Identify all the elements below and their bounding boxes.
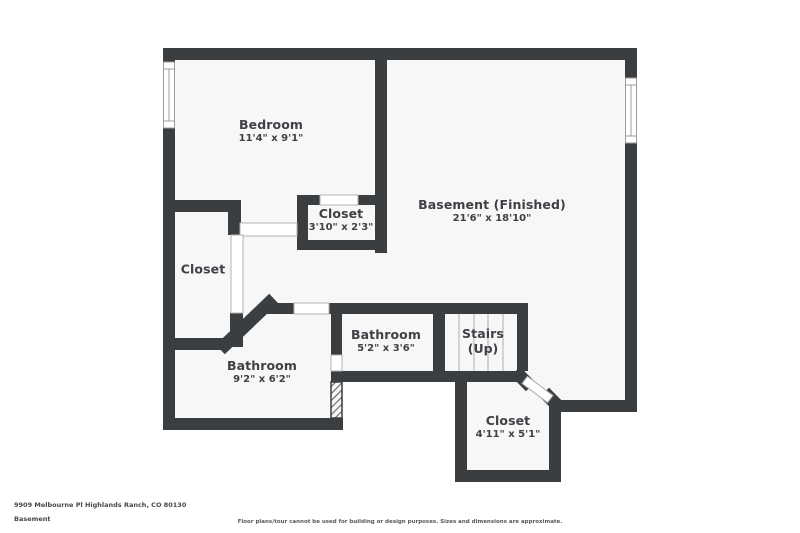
room-dims: 11'4" x 9'1": [239, 132, 304, 145]
room-label-bedroom: Bedroom 11'4" x 9'1": [239, 117, 304, 145]
footer-disclaimer: Floor plans/tour cannot be used for buil…: [0, 519, 800, 525]
room-name: Closet: [181, 262, 226, 277]
room-dims: (Up): [462, 341, 504, 356]
room-name: Stairs: [462, 326, 504, 341]
room-label-closet-left: Closet: [181, 262, 226, 277]
room-name: Bedroom: [239, 117, 304, 132]
room-name: Basement (Finished): [418, 197, 566, 212]
room-dims: 3'10" x 2'3": [309, 221, 374, 234]
room-dims: 4'11" x 5'1": [476, 428, 541, 441]
window-right-icon: [626, 78, 637, 143]
room-label-closet-basement: Closet 4'11" x 5'1": [476, 413, 541, 441]
room-label-stairs: Stairs (Up): [462, 326, 504, 356]
floorplan-page: { "page": { "width": 800, "height": 533,…: [0, 0, 800, 533]
window-left-icon: [164, 62, 175, 128]
room-label-bathroom-small: Bathroom 5'2" x 3'6": [351, 327, 421, 355]
footer-address: 9909 Melbourne Pl Highlands Ranch, CO 80…: [14, 501, 186, 509]
floorplan-canvas: [0, 0, 800, 533]
room-label-bathroom-main: Bathroom 9'2" x 6'2": [227, 358, 297, 386]
room-name: Closet: [309, 206, 374, 221]
room-name: Closet: [476, 413, 541, 428]
hatched-half-wall: [331, 382, 342, 418]
room-dims: 21'6" x 18'10": [418, 212, 566, 225]
room-dims: 5'2" x 3'6": [351, 342, 421, 355]
room-dims: 9'2" x 6'2": [227, 373, 297, 386]
room-label-basement: Basement (Finished) 21'6" x 18'10": [418, 197, 566, 225]
room-name: Bathroom: [227, 358, 297, 373]
room-label-closet-small: Closet 3'10" x 2'3": [309, 206, 374, 234]
room-name: Bathroom: [351, 327, 421, 342]
